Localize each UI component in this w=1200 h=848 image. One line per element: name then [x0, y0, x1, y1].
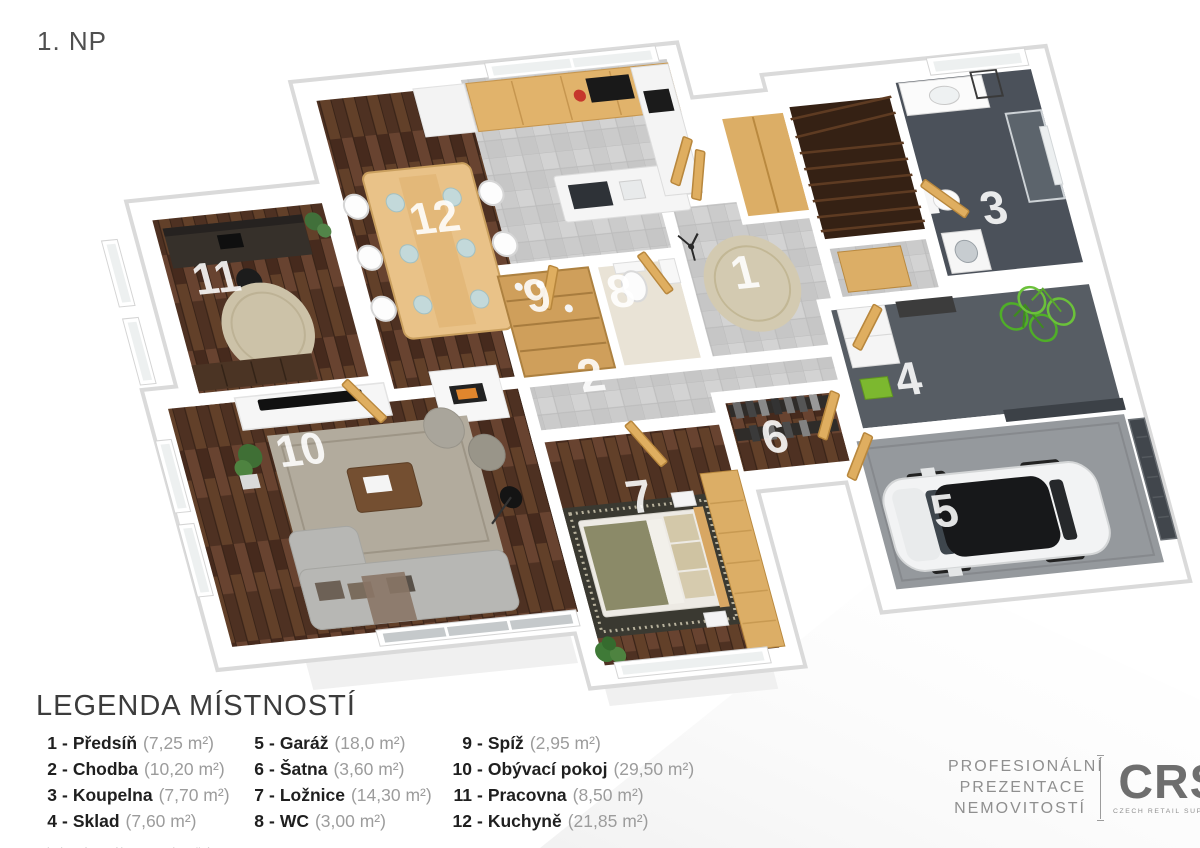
legend-item: 10-Obývací pokoj(29,50 m²) [451, 759, 676, 780]
legend: LEGENDA MÍSTNOSTÍ 1-Předsíň(7,25 m²) 2-C… [36, 690, 676, 848]
legend-item: 6-Šatna(3,60 m²) [243, 759, 451, 780]
green-crate [860, 377, 893, 400]
brand-divider [1100, 757, 1101, 819]
legend-item: 2-Chodba(10,20 m²) [36, 759, 243, 780]
brand-footer: PROFESIONÁLNÍ PREZENTACE NEMOVITOSTÍ CRS… [948, 756, 1200, 819]
brand-tagline: PROFESIONÁLNÍ PREZENTACE NEMOVITOSTÍ [948, 756, 1086, 819]
legend-item: 9-Spíž(2,95 m²) [451, 733, 676, 754]
crs-logo-mark: CRS [1118, 761, 1200, 805]
legend-item: 12-Kuchyně(21,85 m²) [451, 811, 676, 832]
hall-cabinet [838, 246, 912, 292]
crs-logo-subtitle: CZECH RETAIL SUPPORT [1113, 808, 1200, 815]
page: 1. NP [0, 0, 1200, 848]
nightstand [671, 491, 696, 507]
brand-tagline-line: PROFESIONÁLNÍ [948, 756, 1086, 777]
nightstand [704, 611, 729, 627]
fire-icon [456, 388, 478, 400]
legend-item: 8-WC(3,00 m²) [243, 811, 451, 832]
legend-item: 1-Předsíň(7,25 m²) [36, 733, 243, 754]
cooktop [585, 74, 635, 102]
legend-item: 3-Koupelna(7,70 m²) [36, 785, 243, 806]
legend-item: 11-Pracovna(8,50 m²) [451, 785, 676, 806]
legend-title: LEGENDA MÍSTNOSTÍ [36, 690, 676, 723]
legend-item: 4-Sklad(7,60 m²) [36, 811, 243, 832]
legend-item: 7-Ložnice(14,30 m²) [243, 785, 451, 806]
brand-tagline-line: NEMOVITOSTÍ [948, 798, 1086, 819]
crs-logo: CRS CZECH RETAIL SUPPORT [1113, 761, 1200, 815]
legend-item: 5-Garáž(18,0 m²) [243, 733, 451, 754]
brand-tagline-line: PREZENTACE [948, 777, 1086, 798]
